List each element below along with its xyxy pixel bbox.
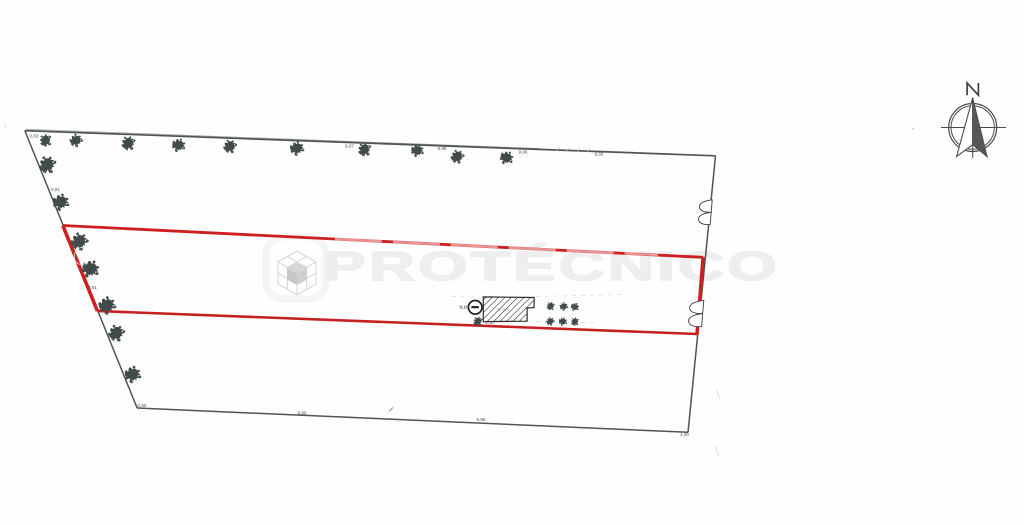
svg-text:0,63: 0,63 (30, 134, 39, 139)
svg-text:0,91: 0,91 (51, 187, 60, 192)
svg-text:0,90: 0,90 (138, 403, 147, 408)
svg-text:1,00: 1,00 (680, 432, 689, 437)
svg-text:9,90: 9,90 (298, 411, 307, 416)
svg-text:9,97: 9,97 (345, 144, 354, 149)
svg-text:9,96: 9,96 (519, 149, 528, 154)
svg-text:0,10: 0,10 (460, 305, 469, 310)
svg-text:0,10: 0,10 (485, 320, 494, 325)
svg-text:0,91: 0,91 (88, 285, 97, 290)
svg-text:9,86: 9,86 (477, 417, 486, 422)
svg-text:9,95: 9,95 (438, 146, 447, 151)
svg-text:ah-aca: ah-aca (497, 307, 510, 312)
svg-text:9,92: 9,92 (595, 152, 604, 157)
